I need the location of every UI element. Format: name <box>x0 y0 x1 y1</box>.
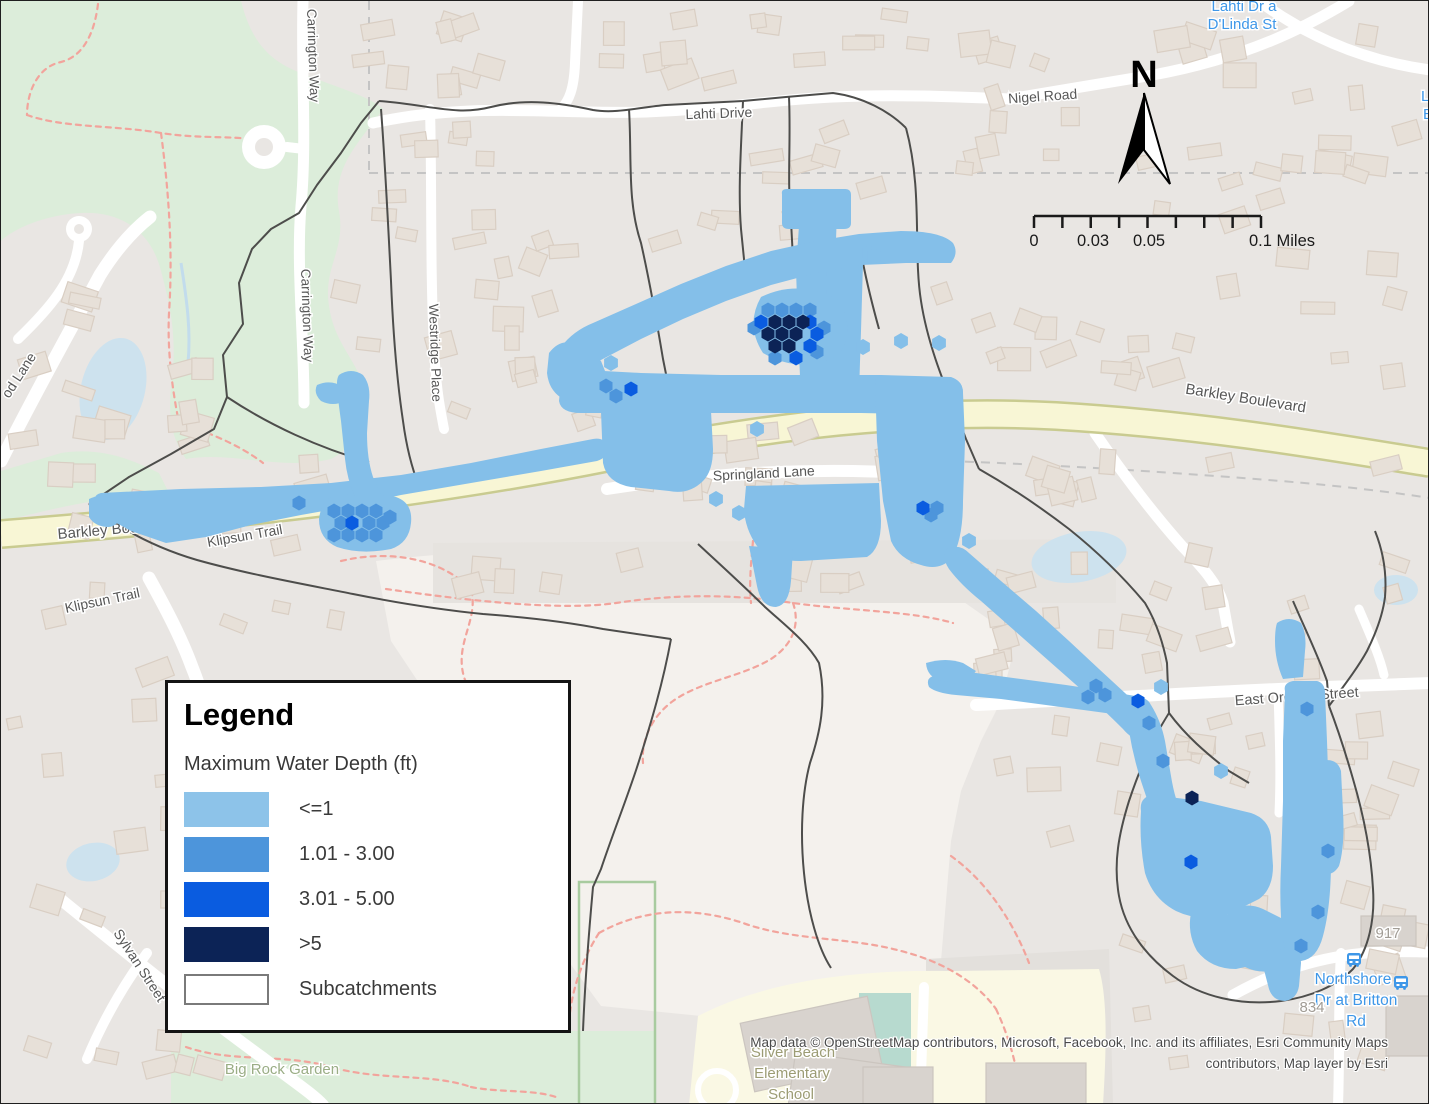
building <box>476 151 494 166</box>
flood-extent-lt1 <box>601 411 713 492</box>
map-label: 834 <box>1299 999 1324 1016</box>
legend-swatch-lt1 <box>184 792 269 827</box>
map-label: B <box>1423 106 1429 123</box>
building <box>1345 742 1367 759</box>
attribution-line-2: contributors, Map layer by Esri <box>688 1053 1388 1074</box>
building <box>132 698 157 722</box>
map-label: D'Linda St <box>1208 16 1278 33</box>
legend-items: <=1 1.01 - 3.00 3.01 - 5.00 >5 Subcatchm… <box>184 792 568 1007</box>
building <box>192 358 213 379</box>
map-label: Northshore <box>1315 971 1392 988</box>
building <box>1133 1006 1151 1022</box>
legend-label-subcatchments: Subcatchments <box>299 978 437 1001</box>
building <box>1154 26 1191 53</box>
building <box>356 337 381 352</box>
building <box>1071 552 1088 575</box>
map-window: Lahti DriveNigel RoadCarrington WayCarri… <box>0 0 1429 1104</box>
building <box>1188 733 1216 755</box>
map-label: Dr at Britton <box>1315 992 1398 1009</box>
building <box>494 256 512 278</box>
building <box>114 827 148 854</box>
building <box>1356 24 1378 48</box>
legend-label-lt1: <=1 <box>299 798 333 821</box>
building <box>272 600 290 614</box>
map-label: Big Rock Garden <box>225 1061 339 1078</box>
building <box>539 572 562 594</box>
map-label: Lahti Dr a <box>1211 1 1277 15</box>
map-attribution: Map data © OpenStreetMap contributors, M… <box>688 1032 1388 1074</box>
street <box>1278 690 1280 813</box>
building <box>505 326 520 350</box>
map-label: School <box>768 1086 814 1103</box>
building <box>1281 154 1303 173</box>
building <box>994 756 1013 776</box>
building <box>415 140 439 157</box>
legend-label-gt5: >5 <box>299 933 322 956</box>
building <box>1344 827 1377 841</box>
legend-item-depth-3-5: 3.01 - 5.00 <box>184 882 568 917</box>
building <box>73 416 108 443</box>
building <box>71 464 95 482</box>
legend-label-1-3: 1.01 - 3.00 <box>299 843 395 866</box>
building <box>1356 711 1383 739</box>
building <box>1318 135 1351 150</box>
building <box>1217 273 1240 299</box>
legend-item-subcatchments: Subcatchments <box>184 972 568 1007</box>
building <box>327 610 344 630</box>
street <box>287 147 304 149</box>
building <box>452 121 471 138</box>
scale-bar-label: 0.05 <box>1133 232 1165 250</box>
bus-stop-icon <box>1394 976 1408 990</box>
legend-panel: Legend Maximum Water Depth (ft) <=1 1.01… <box>165 680 571 1033</box>
legend-label-3-5: 3.01 - 5.00 <box>299 888 395 911</box>
building <box>670 9 697 30</box>
building <box>179 399 199 424</box>
legend-item-depth-lt1: <=1 <box>184 792 568 827</box>
legend-swatch-1-3 <box>184 837 269 872</box>
building <box>750 13 767 29</box>
building <box>472 209 496 229</box>
building <box>105 420 125 439</box>
map-label: Lahti Drive <box>685 104 753 122</box>
building <box>907 37 929 51</box>
map-label: 917 <box>1375 925 1400 942</box>
building <box>821 574 849 593</box>
building <box>603 22 624 46</box>
building <box>956 161 974 176</box>
legend-title: Legend <box>184 697 568 733</box>
map-label: La <box>1421 88 1429 105</box>
building <box>1223 63 1256 88</box>
scale-bar-label: 0.1 Miles <box>1249 232 1315 250</box>
building <box>1052 715 1069 736</box>
flood-extent-lt1 <box>1275 619 1306 679</box>
building <box>1246 733 1265 750</box>
building <box>156 1030 181 1053</box>
building <box>762 172 789 184</box>
map-label: Rd <box>1346 1013 1366 1030</box>
scale-bar-label: 0.03 <box>1077 232 1109 250</box>
building <box>174 1054 194 1075</box>
building <box>1128 335 1149 352</box>
legend-swatch-3-5 <box>184 882 269 917</box>
building <box>793 52 825 68</box>
building <box>989 111 1007 134</box>
building <box>958 30 992 57</box>
building <box>1101 361 1131 375</box>
building <box>372 208 397 222</box>
building <box>1366 251 1398 277</box>
building <box>843 36 875 50</box>
north-arrow-label: N <box>1130 54 1157 96</box>
building <box>48 462 74 487</box>
building <box>1315 151 1346 175</box>
building <box>1220 36 1247 63</box>
building <box>1027 767 1061 792</box>
legend-item-depth-gt5: >5 <box>184 927 568 962</box>
building <box>1348 85 1364 110</box>
building <box>599 54 624 68</box>
building <box>986 40 1015 68</box>
legend-swatch-subcatchments <box>184 974 269 1005</box>
building <box>474 279 499 300</box>
legend-swatch-gt5 <box>184 927 269 962</box>
building <box>1097 743 1122 766</box>
building <box>1098 630 1114 649</box>
building <box>660 40 687 66</box>
building <box>386 65 409 90</box>
building <box>494 569 514 594</box>
building <box>1301 302 1335 314</box>
building <box>1061 107 1079 125</box>
attribution-line-1: Map data © OpenStreetMap contributors, M… <box>688 1032 1388 1053</box>
building <box>437 73 459 97</box>
building <box>6 716 22 730</box>
bus-stop-icon <box>1347 953 1361 967</box>
building <box>378 190 406 204</box>
legend-subtitle: Maximum Water Depth (ft) <box>184 753 568 776</box>
building <box>1153 201 1170 217</box>
building <box>1043 149 1058 160</box>
building <box>42 753 64 778</box>
building <box>1142 651 1162 673</box>
building <box>1276 247 1310 269</box>
building <box>1099 449 1116 475</box>
building <box>1331 352 1349 364</box>
scale-bar-label: 0 <box>1029 232 1038 250</box>
building <box>1202 585 1225 610</box>
building <box>549 244 579 259</box>
legend-item-depth-1-3: 1.01 - 3.00 <box>184 837 568 872</box>
building <box>724 437 759 463</box>
building <box>41 606 66 630</box>
building <box>1380 363 1405 389</box>
building <box>299 454 319 473</box>
